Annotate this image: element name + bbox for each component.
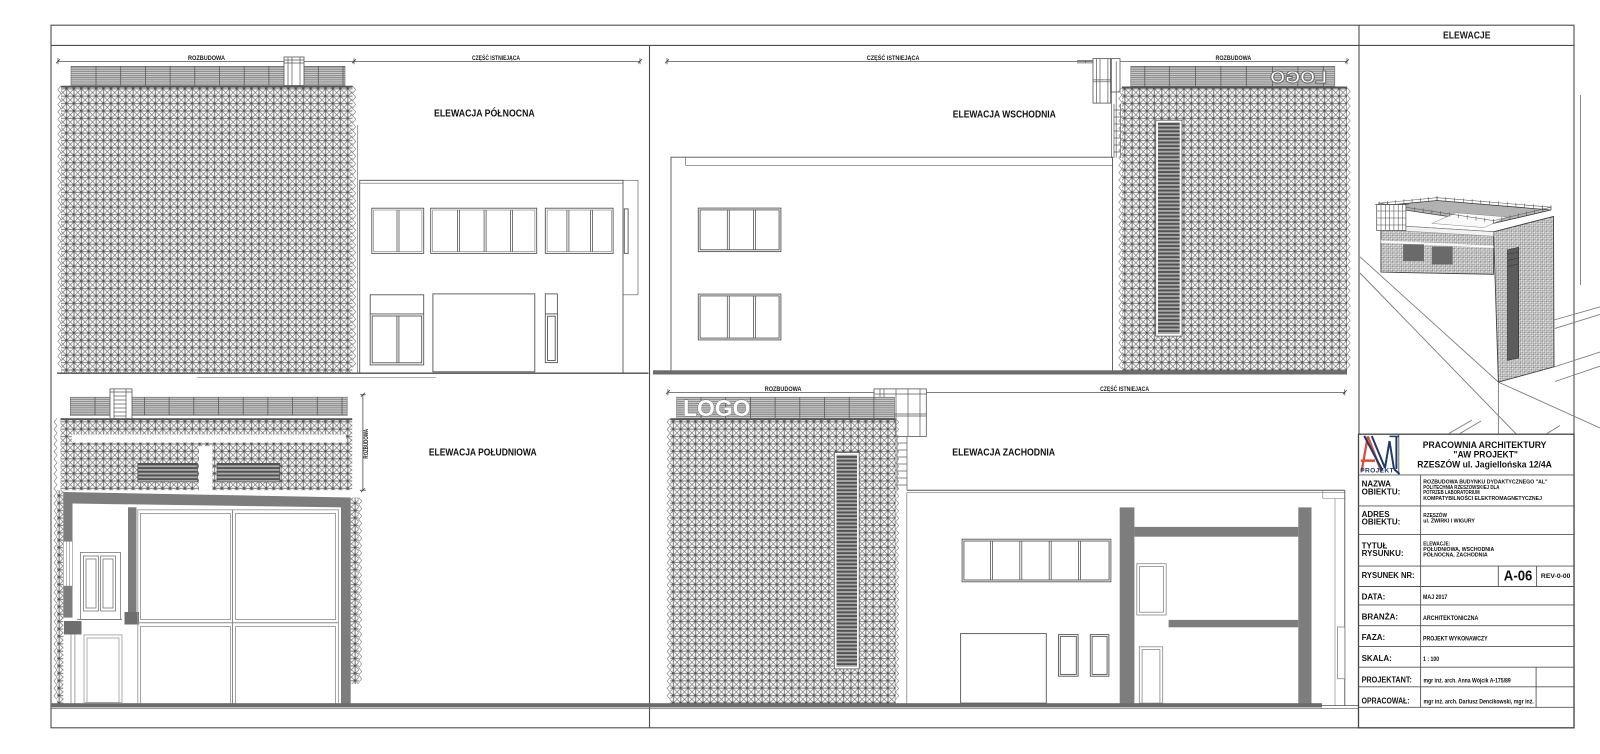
svg-text:ELEWACJA POŁUDNIOWA: ELEWACJA POŁUDNIOWA [429,448,537,459]
svg-text:CZĘŚĆ ISTNIEJĄCA: CZĘŚĆ ISTNIEJĄCA [867,54,920,62]
svg-text:LOGO: LOGO [683,395,751,421]
svg-text:PROJEKT: PROJEKT [1360,468,1394,475]
svg-text:OBIEKTU:: OBIEKTU: [1362,488,1401,497]
svg-text:BRANŻA:: BRANŻA: [1362,613,1398,622]
svg-text:SKALA:: SKALA: [1362,654,1392,663]
svg-text:RYSUNEK NR:: RYSUNEK NR: [1362,571,1415,580]
svg-text:mgr inż. arch. Anna Wójcik A-1: mgr inż. arch. Anna Wójcik A-175/89 [1424,679,1512,685]
svg-text:ROZBUDOWA: ROZBUDOWA [1216,55,1252,62]
svg-text:OPRACOWAŁ:: OPRACOWAŁ: [1362,696,1410,705]
svg-text:OBIEKTU:: OBIEKTU: [1362,518,1401,527]
svg-text:MAJ 2017: MAJ 2017 [1423,595,1448,601]
svg-text:A-06: A-06 [1504,567,1533,584]
svg-text:RZESZÓW ul. Jagiellońska 12/4A: RZESZÓW ul. Jagiellońska 12/4A [1417,459,1552,470]
svg-text:ELEWACJA WSCHODNIA: ELEWACJA WSCHODNIA [953,110,1057,121]
svg-text:LOGO: LOGO [1270,67,1327,87]
svg-text:1 : 100: 1 : 100 [1423,657,1440,663]
svg-text:ROZBUDOWA: ROZBUDOWA [188,55,225,62]
svg-text:REV-0-00: REV-0-00 [1541,573,1571,580]
svg-text:ROZBUDOWA: ROZBUDOWA [765,386,802,393]
svg-text:ELEWACJA PÓŁNOCNA: ELEWACJA PÓŁNOCNA [434,107,535,120]
svg-text:DATA:: DATA: [1362,592,1386,601]
svg-text:CZĘŚĆ ISTNIEJĄCA: CZĘŚĆ ISTNIEJĄCA [472,54,520,62]
svg-text:PÓŁNOCNA, ZACHODNIA: PÓŁNOCNA, ZACHODNIA [1423,550,1487,558]
svg-text:mgr inż. arch. Dariusz Denciko: mgr inż. arch. Dariusz Dencikowski, mgr … [1424,699,1535,705]
svg-text:CZĘŚĆ ISTNIEJĄCA: CZĘŚĆ ISTNIEJĄCA [1100,385,1149,393]
svg-text:PROJEKTANT:: PROJEKTANT: [1362,676,1412,685]
svg-text:PROJEKT WYKONAWCZY: PROJEKT WYKONAWCZY [1423,636,1488,642]
svg-text:FAZA:: FAZA: [1362,633,1386,642]
svg-text:ROZBUDOWA: ROZBUDOWA [363,429,370,459]
svg-text:ELEWACJE: ELEWACJE [1443,30,1491,41]
svg-text:ELEWACJA ZACHODNIA: ELEWACJA ZACHODNIA [952,448,1055,459]
svg-text:ul. ŻWIRKI I WIGURY: ul. ŻWIRKI I WIGURY [1423,517,1475,524]
svg-text:KOMPATYBILNOŚCI ELEKTROMAGNETY: KOMPATYBILNOŚCI ELEKTROMAGNETYCZNEJ [1423,495,1542,502]
svg-text:ARCHITEKTONICZNA: ARCHITEKTONICZNA [1423,616,1479,622]
svg-text:RYSUNKU:: RYSUNKU: [1362,549,1404,558]
svg-text:PRACOWNIA ARCHITEKTURY: PRACOWNIA ARCHITEKTURY [1423,440,1547,450]
svg-text:"AW PROJEKT": "AW PROJEKT" [1453,450,1518,460]
